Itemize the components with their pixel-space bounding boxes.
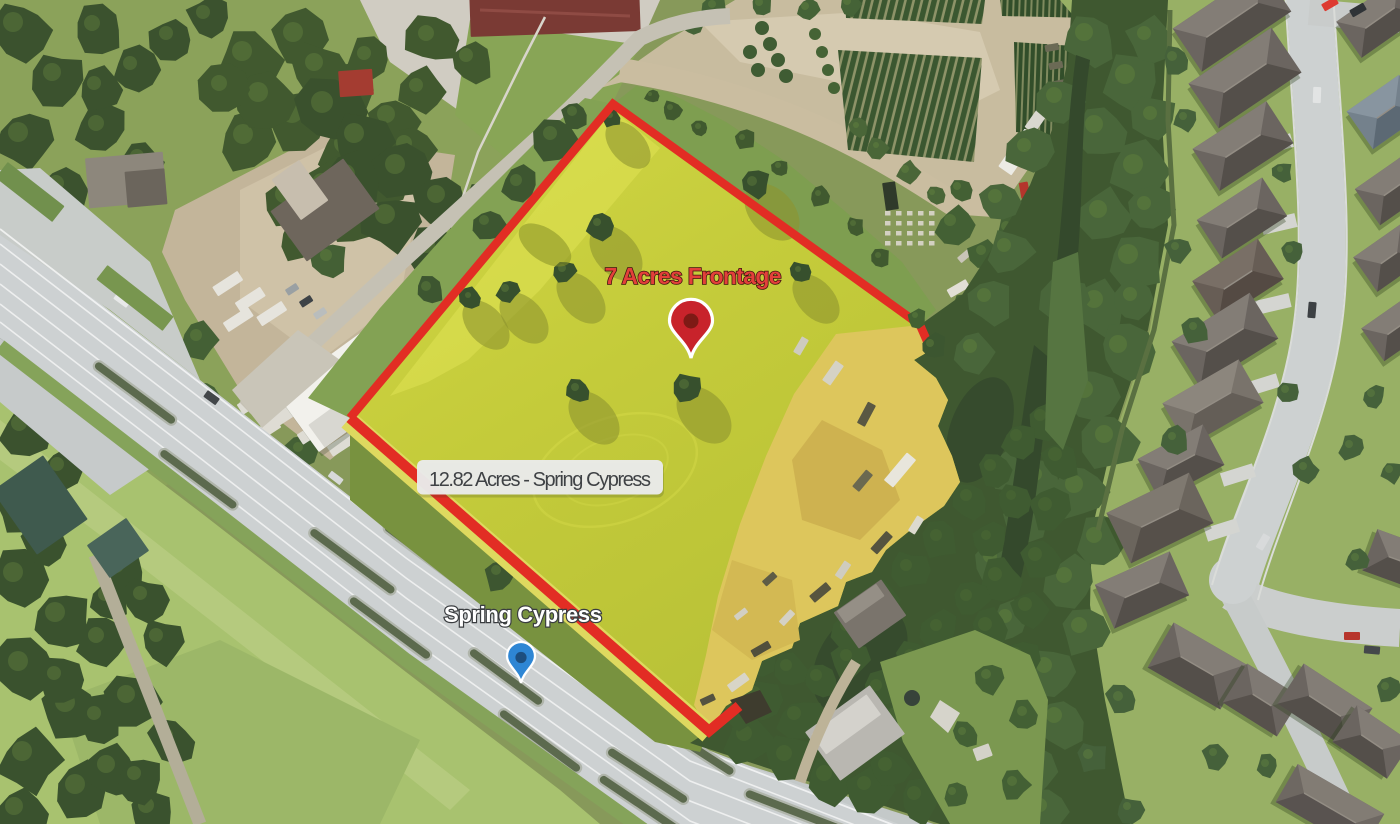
svg-text:12.82 Acres - Spring Cypress: 12.82 Acres - Spring Cypress <box>429 469 651 491</box>
svg-text:Spring Cypress: Spring Cypress <box>444 602 602 627</box>
svg-text:7 Acres Frontage: 7 Acres Frontage <box>605 263 782 289</box>
